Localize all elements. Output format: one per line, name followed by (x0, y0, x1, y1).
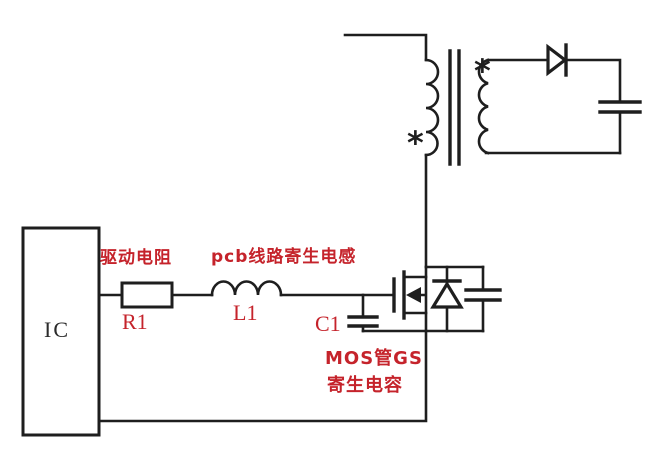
mosfet-source-lead (404, 313, 426, 331)
c1-designator: C1 (315, 312, 341, 336)
ic-label: IC (44, 318, 70, 342)
resistor-r1-symbol (122, 283, 172, 307)
r1-designator: R1 (122, 310, 148, 334)
output-diode-symbol (548, 45, 566, 75)
output-capacitor-symbol (600, 102, 640, 153)
pcb-parasitic-inductance-annotation: pcb线路寄生电感 (211, 248, 356, 267)
mosfet-symbol (394, 267, 426, 331)
body-diode-symbol (433, 267, 461, 331)
mos-gs-annotation-line2: 寄生电容 (327, 376, 403, 396)
schematic-canvas: IC 驱动电阻 R1 pcb线路寄生电感 L1 C1 MOS管GS 寄生电容 *… (0, 0, 649, 453)
primary-polarity-dot: * (407, 126, 424, 161)
inductor-l1-symbol (212, 282, 281, 296)
primary-top-wire (345, 35, 426, 60)
circuit-drawing (0, 0, 649, 453)
mosfet-drain-lead (404, 267, 426, 277)
l1-designator: L1 (233, 301, 257, 325)
mosfet-arrow (406, 287, 421, 303)
transformer-core (450, 51, 459, 164)
secondary-output-loop (486, 45, 640, 153)
mos-gs-annotation-line1: MOS管GS (325, 349, 423, 369)
secondary-polarity-dot: * (474, 54, 491, 89)
capacitor-c1-symbol (349, 295, 377, 331)
drain-source-capacitor-symbol (466, 267, 500, 331)
drive-resistor-annotation: 驱动电阻 (100, 249, 172, 268)
transformer-primary-winding (426, 60, 438, 155)
